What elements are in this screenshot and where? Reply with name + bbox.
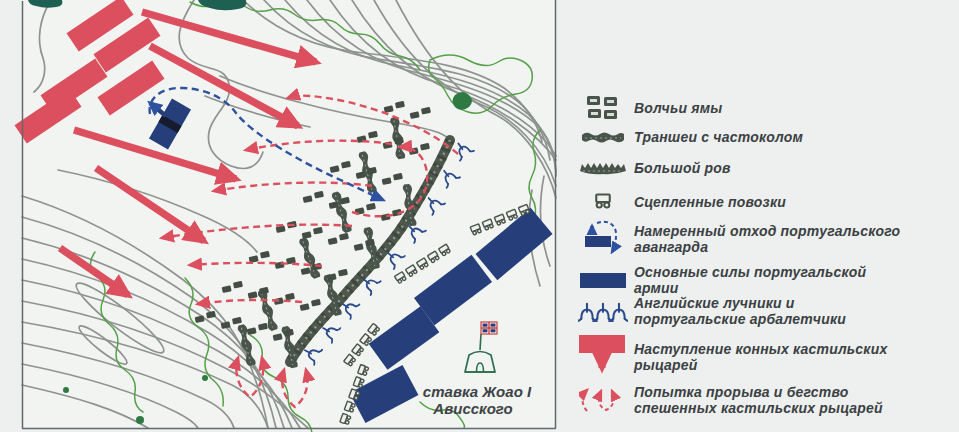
linked-wagons-icon bbox=[572, 193, 634, 210]
legend: Волчьи ямы Траншеи с частоколом Большой … bbox=[572, 0, 957, 432]
legend-label: Большой ров bbox=[634, 160, 731, 176]
knights-advance-icon bbox=[572, 334, 634, 380]
legend-label: Сцепленные повозки bbox=[634, 194, 786, 210]
flag-icon bbox=[481, 322, 497, 334]
legend-item: Попытка прорыва и бегство спешенных каст… bbox=[572, 384, 902, 416]
caption-line1: ставка Жоао I bbox=[423, 383, 532, 400]
caption-line2: Ависского bbox=[432, 400, 512, 417]
main-forces-icon bbox=[572, 272, 634, 289]
battle-map: ставка Жоао I Ависского bbox=[0, 0, 557, 432]
legend-item: Основные силы португальской армии bbox=[572, 264, 902, 296]
big-ditch-icon bbox=[572, 159, 634, 176]
wolf-pits-icon bbox=[572, 95, 634, 121]
legend-item: Наступление конных кастильских рыцарей bbox=[572, 334, 902, 380]
legend-item: Траншеи с частоколом bbox=[572, 129, 803, 145]
legend-item: Большой ров bbox=[572, 159, 731, 176]
archers-crossbowmen-icon bbox=[572, 300, 634, 322]
legend-label: Основные силы португальской армии bbox=[634, 264, 902, 296]
legend-item: Английские лучники и португальские арбал… bbox=[572, 295, 902, 327]
legend-item: Намеренный отход португальского авангард… bbox=[572, 218, 902, 260]
legend-label: Траншеи с частоколом bbox=[634, 129, 803, 145]
legend-label: Английские лучники и португальские арбал… bbox=[634, 295, 902, 327]
legend-label: Волчьи ямы bbox=[634, 100, 723, 116]
legend-label: Попытка прорыва и бегство спешенных каст… bbox=[634, 384, 902, 416]
legend-label: Намеренный отход португальского авангард… bbox=[634, 223, 902, 255]
legend-item: Сцепленные повозки bbox=[572, 193, 786, 210]
legend-item: Волчьи ямы bbox=[572, 95, 723, 121]
trench-palisade-icon bbox=[572, 130, 634, 144]
vanguard-withdrawal-icon bbox=[572, 218, 634, 260]
breakthrough-flight-icon bbox=[572, 385, 634, 415]
legend-label: Наступление конных кастильских рыцарей bbox=[634, 341, 902, 373]
battle-map-page: ставка Жоао I Ависского Волчьи ямы bbox=[0, 0, 959, 432]
